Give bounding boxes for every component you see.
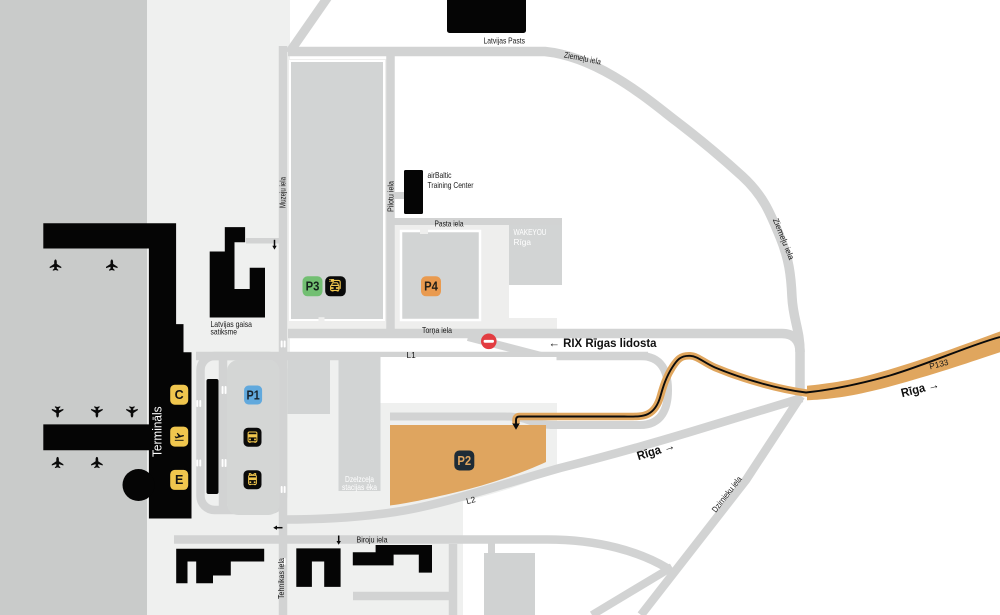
svg-text:WAKEYOU: WAKEYOU <box>514 227 547 237</box>
svg-text:← RIX Rīgas lidosta: ← RIX Rīgas lidosta <box>549 336 657 350</box>
svg-text:satiksme: satiksme <box>211 327 238 337</box>
svg-text:Pasta iela: Pasta iela <box>435 219 464 229</box>
svg-text:Pilotu iela: Pilotu iela <box>386 181 396 212</box>
svg-text:E: E <box>175 473 183 487</box>
svg-text:P1: P1 <box>247 388 260 402</box>
svg-text:C: C <box>175 388 184 402</box>
svg-text:airBaltic: airBaltic <box>428 170 452 180</box>
svg-text:Tehnikas iela: Tehnikas iela <box>276 558 286 599</box>
svg-text:stacijas ēka: stacijas ēka <box>342 482 377 492</box>
svg-text:Muzeju iela: Muzeju iela <box>278 177 288 208</box>
svg-text:Termināls: Termināls <box>151 407 165 458</box>
svg-text:L1: L1 <box>407 350 417 360</box>
svg-text:Biroju iela: Biroju iela <box>357 535 388 545</box>
svg-text:P3: P3 <box>306 280 320 294</box>
svg-text:Torņa iela: Torņa iela <box>422 325 452 335</box>
svg-text:Rīga: Rīga <box>514 237 532 247</box>
svg-text:Training Center: Training Center <box>428 180 474 190</box>
svg-text:P2: P2 <box>457 454 471 468</box>
svg-text:P4: P4 <box>424 280 438 294</box>
svg-text:Latvijas Pasts: Latvijas Pasts <box>484 36 526 46</box>
